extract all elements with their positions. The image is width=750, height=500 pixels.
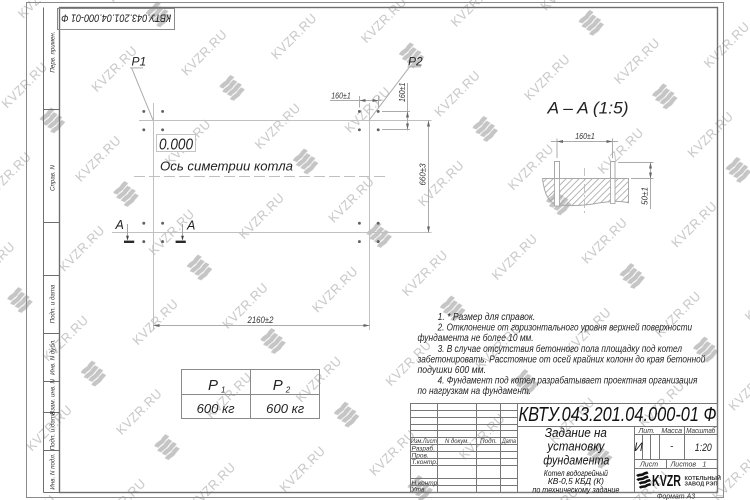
svg-text:И: И <box>634 440 643 454</box>
svg-text:Разраб.: Разраб. <box>412 444 436 452</box>
svg-text:КВТУ.043.201.04.000-01 Ф: КВТУ.043.201.04.000-01 Ф <box>61 12 171 24</box>
svg-text:600 кг: 600 кг <box>197 401 236 416</box>
svg-text:установку: установку <box>547 439 606 454</box>
svg-text:160±1: 160±1 <box>331 90 351 100</box>
svg-text:Листов: Листов <box>670 461 697 468</box>
svg-text:Лит.: Лит. <box>638 428 655 435</box>
svg-text:Инв. N подл.: Инв. N подл. <box>49 453 56 489</box>
svg-text:Ось симетрии котла: Ось симетрии котла <box>160 160 293 174</box>
svg-text:Т.контр.: Т.контр. <box>412 459 438 466</box>
svg-text:KVZR: KVZR <box>652 473 681 490</box>
svg-text:P: P <box>208 377 218 394</box>
svg-text:160±1: 160±1 <box>397 82 407 102</box>
svg-text:1:20: 1:20 <box>695 442 713 454</box>
svg-text:по техническому задание: по техническому задание <box>532 484 619 494</box>
svg-text:A – A (1:5): A – A (1:5) <box>546 100 628 118</box>
svg-text:фундамента не более 10 мм.: фундамента не более 10 мм. <box>418 332 534 344</box>
svg-text:2. Отклонение от горизонтально: 2. Отклонение от горизонтального уровня … <box>437 323 693 334</box>
svg-text:A: A <box>186 218 195 232</box>
svg-text:3. В случае отсутствия бетонно: 3. В случае отсутствия бетонного пола пл… <box>438 343 683 355</box>
svg-text:2: 2 <box>285 386 291 395</box>
svg-text:P1: P1 <box>132 55 147 69</box>
svg-text:Масса: Масса <box>661 428 682 435</box>
svg-text:A: A <box>115 218 124 232</box>
svg-text:ЗАВОД РЭП: ЗАВОД РЭП <box>685 482 718 488</box>
svg-text:Инв. N дубл.: Инв. N дубл. <box>49 339 56 375</box>
svg-text:КВТУ.043.201.04.000-01 Ф: КВТУ.043.201.04.000-01 Ф <box>519 404 717 426</box>
svg-text:N докум.: N докум. <box>445 437 469 445</box>
svg-text:Подп. и дата: Подп. и дата <box>49 411 56 450</box>
svg-text:50±1: 50±1 <box>640 187 650 205</box>
svg-text:Справ. N: Справ. N <box>49 165 56 191</box>
svg-text:Перв. примен.: Перв. примен. <box>49 31 56 72</box>
svg-text:Подп.: Подп. <box>480 437 497 445</box>
svg-text:2160±2: 2160±2 <box>247 315 274 325</box>
svg-text:1: 1 <box>703 461 707 468</box>
svg-text:Подп. и дата: Подп. и дата <box>49 284 56 323</box>
svg-text:600 кг: 600 кг <box>266 401 305 416</box>
svg-text:660±3: 660±3 <box>418 163 428 185</box>
svg-text:1: 1 <box>221 386 225 395</box>
svg-text:160±1: 160±1 <box>575 131 595 141</box>
svg-text:0.000: 0.000 <box>159 137 193 154</box>
svg-text:Взам. инв. N: Взам. инв. N <box>49 378 56 415</box>
svg-text:забетонировать. Расстояние от: забетонировать. Расстояние от осей крайн… <box>417 354 706 366</box>
svg-text:Утв.: Утв. <box>411 487 427 494</box>
svg-text:1. * Размер для справок.: 1. * Размер для справок. <box>438 312 536 323</box>
svg-text:по нагрузкам на фундамент.: по нагрузкам на фундамент. <box>418 385 532 397</box>
svg-text:Изм.Лист: Изм.Лист <box>411 438 437 445</box>
svg-text:подушки 600 мм.: подушки 600 мм. <box>418 365 487 376</box>
svg-text:P2: P2 <box>408 55 423 69</box>
svg-text:Дата: Дата <box>501 438 516 445</box>
svg-text:фундамента: фундамента <box>543 452 609 467</box>
svg-text:Формат А3: Формат А3 <box>657 493 695 500</box>
svg-text:P: P <box>273 377 283 394</box>
svg-text:Масштаб: Масштаб <box>686 427 716 435</box>
svg-text:Лист: Лист <box>639 461 658 468</box>
